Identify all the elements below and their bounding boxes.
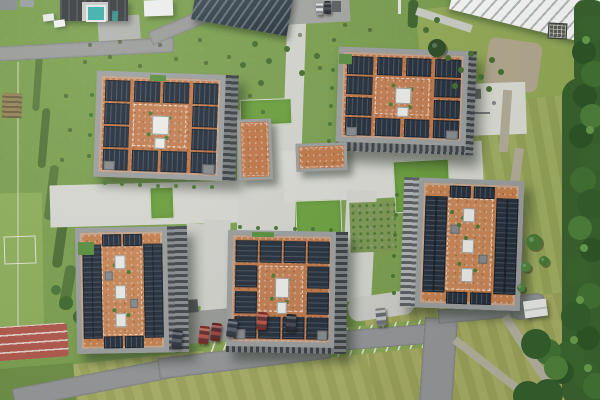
layer-forest <box>0 0 600 400</box>
tree-canopy <box>577 189 600 219</box>
canopy-highlight <box>586 126 594 134</box>
canopy-highlight <box>584 364 592 372</box>
canopy-highlight <box>582 36 590 44</box>
canopy-highlight <box>570 336 578 344</box>
tree-canopy <box>580 104 600 128</box>
tree-canopy <box>561 301 591 331</box>
tree-canopy <box>544 356 568 380</box>
tree-canopy <box>564 258 592 286</box>
tree-canopy <box>568 216 592 240</box>
canopy-highlight <box>580 244 588 252</box>
aerial-photo-residential-estate <box>0 0 600 400</box>
canopy-highlight <box>576 296 584 304</box>
tree-canopy <box>521 329 551 359</box>
tree-canopy <box>581 61 600 87</box>
